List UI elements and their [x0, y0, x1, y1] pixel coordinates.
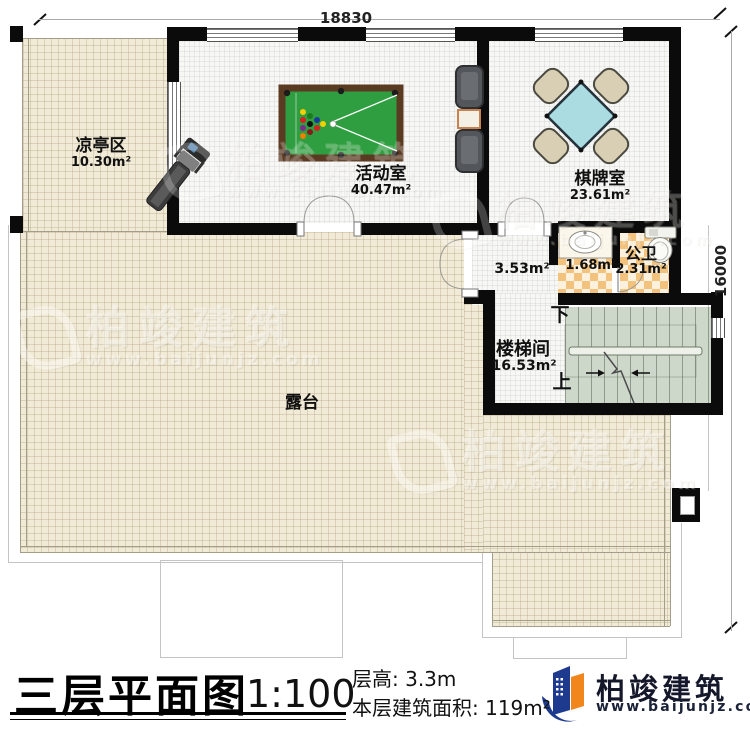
- railing-line: [492, 626, 670, 627]
- wall-segment: [167, 27, 179, 82]
- title-underline: [10, 712, 346, 715]
- dimension-line-top: [38, 19, 720, 20]
- dimension-line-right: [731, 31, 732, 631]
- railing-line: [20, 231, 167, 232]
- room-label-terrace: 露台: [285, 394, 319, 413]
- drain-symbol: [680, 496, 695, 515]
- area-label-activity: 40.47m²: [351, 184, 411, 198]
- wall-segment: [298, 27, 366, 41]
- railing-line: [26, 232, 27, 546]
- room-label-chess: 棋牌室: [575, 170, 626, 189]
- corner-column: [10, 216, 23, 233]
- wall-segment: [358, 223, 457, 235]
- window-icon: [366, 28, 455, 42]
- terrace-floor: [464, 304, 483, 552]
- wall-segment: [558, 293, 723, 305]
- lower-roof-outline: [160, 560, 343, 658]
- terrace-floor: [483, 415, 670, 552]
- dimension-height: 16000: [712, 243, 730, 299]
- lower-roof-outline: [513, 637, 627, 659]
- stair-down-label: 下: [550, 305, 569, 326]
- railing-line: [20, 552, 670, 553]
- window-icon: [207, 28, 298, 42]
- activity-room-floor: [179, 41, 477, 223]
- railing-line: [20, 232, 21, 552]
- stair-up-label: 上: [552, 372, 571, 393]
- terrace-floor: [20, 232, 464, 552]
- window-icon: [167, 82, 181, 178]
- floor-area-label: 本层建筑面积: 119m²: [352, 692, 551, 721]
- area-label-pavilion: 10.30m²: [71, 156, 131, 170]
- railing-line: [670, 415, 671, 626]
- wall-segment: [669, 27, 681, 305]
- railing-line: [664, 415, 665, 626]
- wall-segment: [711, 338, 723, 415]
- area-label-chess: 23.61m²: [570, 189, 630, 203]
- area-label-stairwell: 16.53m²: [491, 359, 556, 374]
- area-label-wash: 1.68m²: [565, 259, 616, 273]
- wall-segment: [457, 223, 498, 235]
- room-label-pavilion: 凉亭区: [76, 137, 127, 156]
- railing-line: [492, 552, 493, 626]
- wall-segment: [477, 27, 489, 235]
- railing-line: [492, 620, 670, 621]
- wall-segment: [483, 403, 723, 415]
- roof-edge-line: [482, 553, 483, 638]
- area-label-toilet: 2.31m²: [615, 263, 666, 277]
- dimension-width: 18830: [316, 9, 376, 27]
- room-label-toilet: 公卫: [625, 245, 657, 263]
- railing-line: [22, 38, 23, 232]
- plan-scale: 1:100: [246, 672, 356, 716]
- pavilion-floor: [23, 38, 167, 232]
- title-underline: [10, 719, 346, 720]
- wall-segment: [455, 27, 535, 41]
- corner-column: [10, 26, 23, 42]
- area-label-hall: 3.53m²: [494, 262, 549, 277]
- room-label-activity: 活动室: [356, 165, 407, 184]
- floor-height-label: 层高: 3.3m: [352, 663, 456, 692]
- floor-plan: 柏竣建筑www.baijunjz.com 柏竣建筑www.baijunjz.co…: [0, 0, 750, 730]
- railing-line: [28, 38, 29, 232]
- terrace-floor-extension: [492, 552, 670, 626]
- railing-line: [20, 546, 670, 547]
- room-label-stairwell: 楼梯间: [496, 340, 550, 360]
- wall-segment: [549, 223, 558, 265]
- roof-edge-line: [8, 225, 9, 563]
- stairwell-landing-floor: [495, 293, 558, 305]
- stair-treads: [565, 307, 711, 403]
- window-icon: [535, 28, 623, 42]
- railing-line: [22, 38, 167, 39]
- wall-segment: [167, 223, 300, 235]
- brand-website: www.baijunjz.com: [596, 699, 750, 715]
- roof-edge-line: [681, 523, 682, 638]
- wall-segment: [483, 292, 495, 415]
- window-icon: [711, 318, 725, 338]
